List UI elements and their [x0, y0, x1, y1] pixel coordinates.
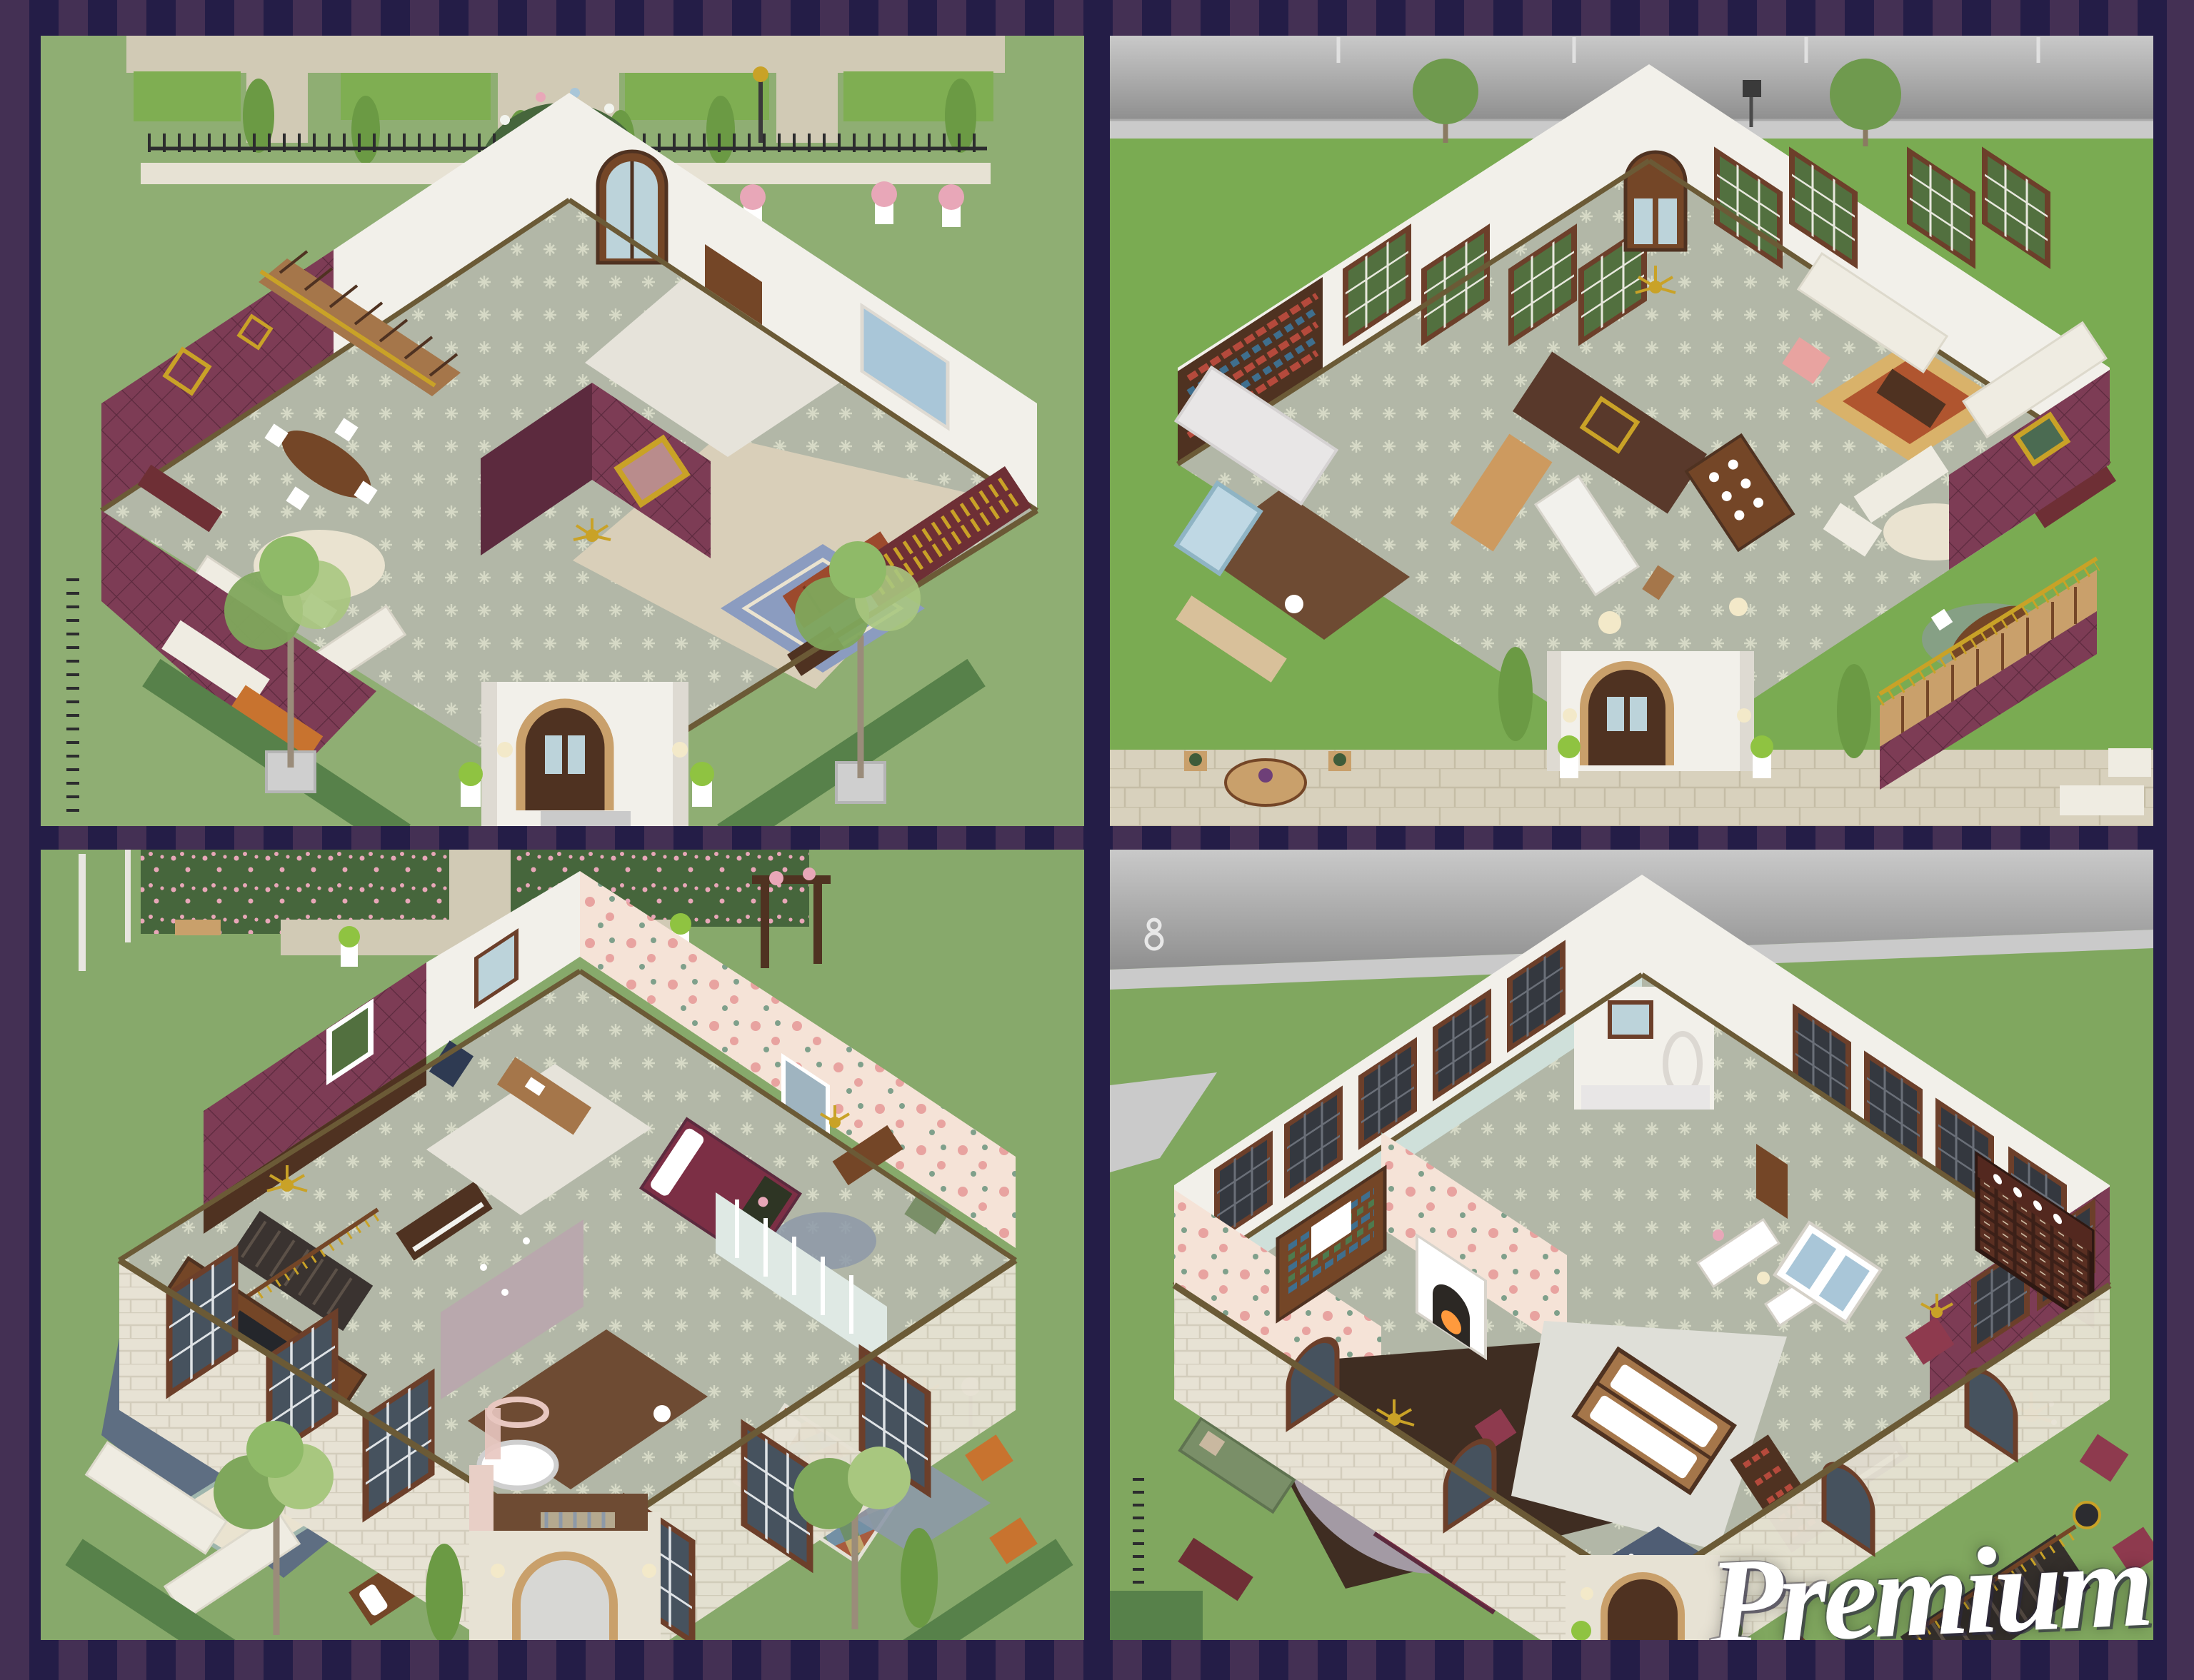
- front-entry: [481, 682, 688, 826]
- panel-ground-floor-rear: [1110, 36, 2153, 826]
- collage-frame: Premium: [0, 0, 2194, 1680]
- ground-floor-front-scene: [41, 36, 1084, 826]
- garage-arch-door: [516, 1556, 613, 1640]
- panel-upper-floor-rear: Premium: [1110, 850, 2153, 1640]
- interior-arch-door: [598, 151, 666, 263]
- front-arch-door: [521, 703, 609, 810]
- entry-tower: [1566, 1555, 1743, 1640]
- panel-ground-floor-front: [41, 36, 1084, 826]
- panel-upper-floor-front: [41, 850, 1084, 1640]
- rear-arch-entry-door: [1584, 665, 1670, 765]
- garden-bench: [175, 920, 221, 935]
- upper-floor-rear-scene: [1110, 850, 2153, 1640]
- lounge-chair: [2060, 785, 2144, 815]
- ground-floor-rear-scene: [1110, 36, 2153, 826]
- arch-door: [1604, 1576, 1681, 1640]
- upper-floor-front-scene: [41, 850, 1084, 1640]
